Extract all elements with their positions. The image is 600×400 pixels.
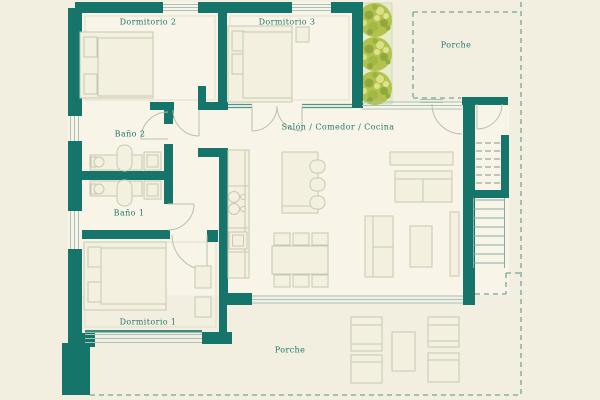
- stool: [310, 160, 325, 173]
- lounger: [428, 317, 459, 347]
- room-label-bano-1: Baño 1: [114, 209, 145, 218]
- room-label-bano-2: Baño 2: [115, 130, 146, 139]
- chair: [293, 275, 309, 287]
- kitchen-counter: [228, 150, 249, 278]
- bathtub: [117, 145, 132, 171]
- room-label-porche-inferior: Porche: [275, 346, 305, 355]
- bathtub: [117, 180, 132, 206]
- stool: [310, 178, 325, 191]
- sideboard: [390, 152, 453, 165]
- tree-icon: [358, 3, 392, 37]
- chair: [312, 233, 328, 245]
- chair: [312, 275, 328, 287]
- lounger: [351, 317, 382, 351]
- coffee-table: [410, 226, 432, 267]
- lounger: [428, 353, 459, 382]
- floor-plan-drawing: [0, 0, 600, 400]
- room-label-dormitorio-1: Dormitorio 1: [120, 318, 177, 327]
- chair: [274, 233, 290, 245]
- kitchen-island: [282, 152, 325, 213]
- shelf: [450, 212, 459, 276]
- toilet-icon: [94, 157, 104, 167]
- chair: [274, 275, 290, 287]
- room-label-dormitorio-3: Dormitorio 3: [259, 18, 316, 27]
- side-table: [392, 332, 415, 371]
- dorm1-window-sill: [85, 330, 202, 333]
- chair: [293, 233, 309, 245]
- tree-icon: [358, 71, 392, 105]
- floor-plan: Dormitorio 2 Dormitorio 3 Porche Baño 2 …: [0, 0, 600, 400]
- tree-icon: [358, 37, 392, 71]
- room-label-salon-comedor-cocina: Salón / Comedor / Cocina: [282, 123, 395, 132]
- room-label-porche-superior: Porche: [441, 41, 471, 50]
- dining-table: [272, 233, 328, 287]
- porch-furniture: [351, 317, 459, 383]
- sink-bowl: [229, 192, 240, 203]
- sink-bowl: [229, 204, 240, 215]
- toilet-icon: [94, 184, 104, 194]
- stool: [310, 196, 325, 209]
- bed-dormitorio-2: [80, 32, 153, 98]
- room-label-dormitorio-2: Dormitorio 2: [120, 18, 177, 27]
- lounger: [351, 355, 382, 383]
